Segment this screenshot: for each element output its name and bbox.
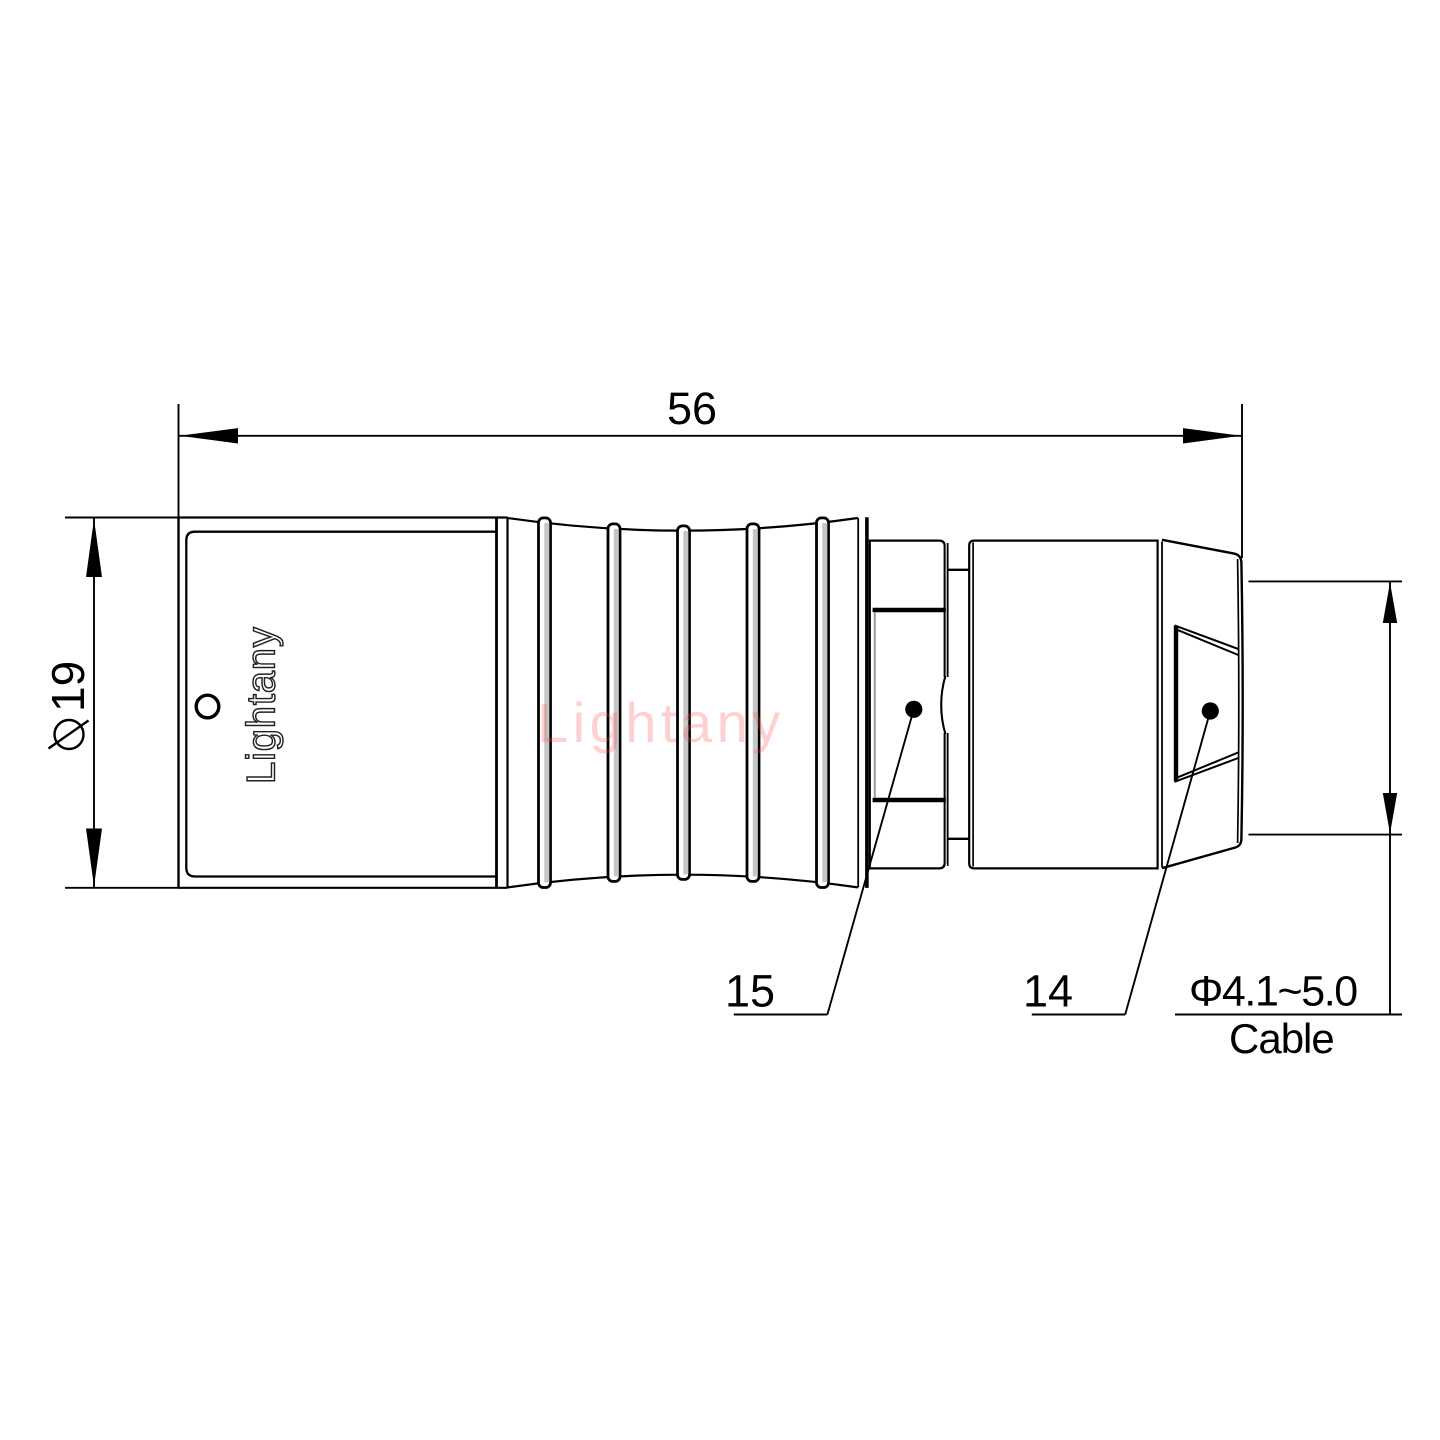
svg-text:Cable: Cable	[1229, 1015, 1334, 1062]
svg-text:19: 19	[42, 661, 94, 712]
svg-text:Lightany: Lightany	[537, 691, 785, 754]
svg-text:56: 56	[667, 383, 717, 434]
svg-text:Lightany: Lightany	[240, 626, 284, 784]
svg-text:15: 15	[725, 966, 775, 1017]
svg-text:14: 14	[1023, 966, 1073, 1017]
svg-text:Φ4.1~5.0: Φ4.1~5.0	[1189, 968, 1357, 1016]
